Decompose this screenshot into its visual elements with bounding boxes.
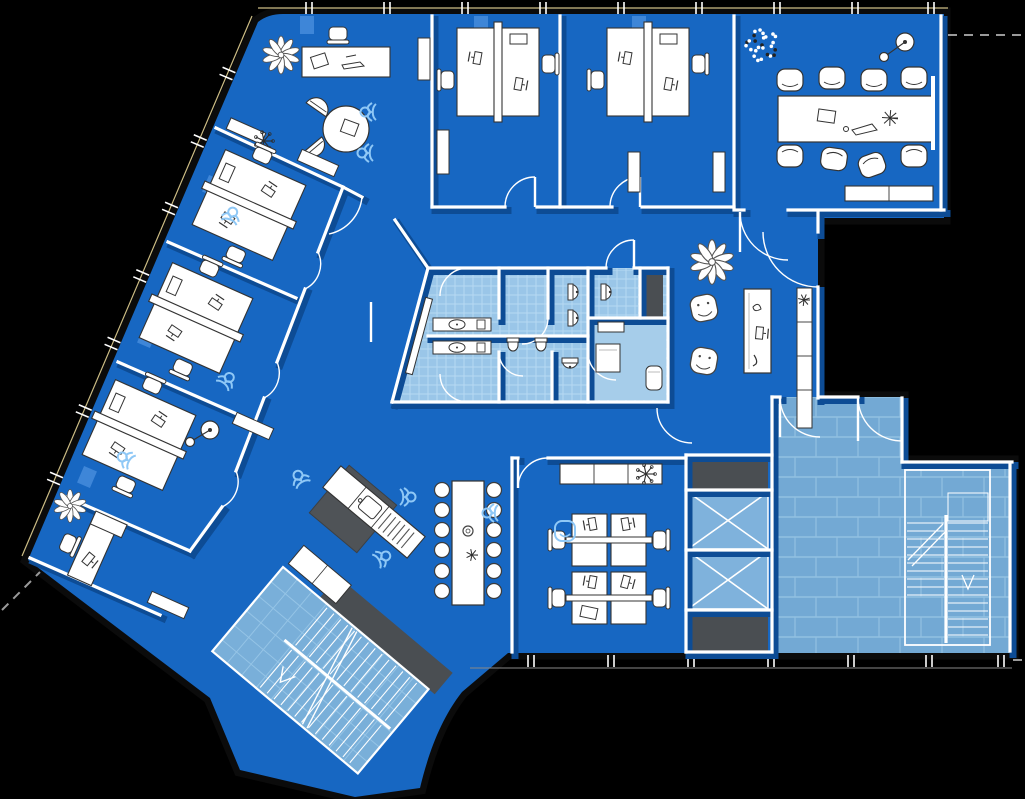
plant-dot [762,36,766,40]
chair-shell [819,67,845,89]
chair-seat [441,71,454,89]
monitor-screen [755,327,763,340]
elevator-shaft-wall-bottom [688,611,768,652]
plant-dot [753,39,757,43]
monitor-stand [522,85,525,86]
desk-divider [644,22,652,122]
urinal [507,338,519,351]
monitor-screen [473,52,482,65]
paper-tray [510,34,527,44]
plant-center [278,52,284,58]
small-shelf [598,322,624,332]
stool-seat [487,543,502,558]
cabinet [437,130,449,174]
monitor-stand [586,525,589,526]
plant-dot [770,44,774,48]
stool-seat [435,523,450,538]
stool-seat [487,523,502,538]
stool [435,523,450,538]
urinal [535,338,547,351]
plant-dot [761,46,765,50]
stool [435,543,450,558]
drain [569,366,571,368]
chair-seat [653,589,666,607]
plant-dot [758,28,762,32]
wc-tiles-base [590,270,638,316]
phone-icon [753,304,761,310]
stool [487,564,502,579]
chair-shell [777,69,803,91]
wc-tiles [590,270,638,316]
plant-dot [757,46,761,50]
boiler-body [646,366,662,390]
chair-back [548,587,552,609]
chair-seat [542,55,555,73]
plant-dot [771,32,775,36]
chair-back [587,69,591,91]
plant-dot [753,30,757,34]
chair-shell [861,69,887,91]
stool [435,584,450,599]
office-chair [653,587,670,609]
chair-back [666,587,670,609]
conference-chair [861,69,887,91]
plant-dot [747,39,751,43]
shelf-column [797,288,812,428]
plant-dot [754,49,758,53]
floor-plan-canvas [0,0,1025,799]
chair-seat [591,71,604,89]
conference-chair [777,145,803,167]
stool-seat [487,584,502,599]
bowl [463,526,473,536]
plant-dot [760,57,764,61]
chair-seat [653,531,666,549]
soap [477,343,485,352]
plant-dot [772,53,776,57]
paper-tray [660,34,677,44]
conference-chair [901,67,927,89]
conference-chair [901,145,927,167]
monitor-screen [514,77,523,90]
monitor-stand [629,523,632,524]
drain [456,324,458,326]
stool [487,483,502,498]
monitor-screen [664,77,673,90]
pilaster [300,16,314,34]
stool-seat [435,584,450,599]
office-chair [548,587,565,609]
chair-seat [692,55,705,73]
monitor-screen [623,52,632,65]
stool-seat [435,503,450,518]
chair-seat [329,27,347,40]
chair-back [555,53,559,75]
cabinet-body [418,38,430,80]
plant-sprig [890,110,891,118]
chair-shell [820,146,849,171]
sideboard [845,186,933,201]
cistern [568,284,573,300]
plant-dot [749,48,753,52]
cup [844,127,849,132]
plant-center [68,504,73,509]
desk [457,28,495,116]
cabinet-body [437,130,449,174]
stool [435,564,450,579]
chair-shell [777,145,803,167]
floor-plan-svg [0,0,1025,799]
plant-dot [752,34,756,38]
urinal-top [535,338,547,342]
desk-divider [566,537,652,543]
conference-table [778,96,932,142]
drain [456,347,458,349]
break-table [452,481,484,605]
office-chair [437,69,454,91]
cabinet [418,38,430,80]
table-top [778,96,932,142]
plant-center [709,259,716,266]
desk-divider [566,595,652,601]
table-top [452,481,484,605]
conference-chair [820,146,849,171]
drain [609,291,611,293]
soap [477,320,485,329]
conference-chair [777,69,803,91]
monitor-screen [588,576,597,589]
plant-dot [752,54,756,58]
chair-shell [901,145,927,167]
cistern [562,358,578,363]
office-chair [692,53,709,75]
chair-back [548,529,552,551]
chair-shell [901,67,927,89]
urinal-bowl [536,342,546,351]
armchair [689,346,719,376]
stool [435,503,450,518]
stool-seat [435,483,450,498]
monitor-stand [471,57,474,58]
stool [487,584,502,599]
conference-chair [819,67,845,89]
round-table [323,106,369,152]
plant-dot [756,59,760,63]
rest-table [596,344,620,372]
monitor-stand [672,85,675,86]
cabinet-body [713,152,725,192]
shelf-body [797,288,812,428]
monitor-stand [621,57,624,58]
urinal-bowl [508,342,518,351]
lamp-base [880,53,889,62]
plant-dot [766,53,770,57]
sink-counter [433,341,491,354]
cabinet [713,152,725,192]
stool-seat [435,543,450,558]
reception-desk [744,289,771,373]
chair-back [437,69,441,91]
monitor-stand [586,581,589,582]
desk [607,28,645,116]
stool-seat [487,483,502,498]
stool-seat [487,564,502,579]
plant-dot [744,44,748,48]
office-chair [653,529,670,551]
cistern [568,310,573,326]
plant-dot [761,32,765,36]
chair-back [327,40,349,44]
chair-shell [689,346,719,376]
table-top [596,344,620,372]
sink-counter [433,318,491,331]
office-chair [542,53,559,75]
office-chair [587,69,604,91]
cabinet-body [628,152,640,192]
cistern [601,284,606,300]
lamp-base [186,438,195,447]
chair-seat [552,589,565,607]
tablet [817,109,836,123]
desk-divider [494,22,502,122]
drain [576,291,578,293]
stool [487,543,502,558]
monitor-screen [588,517,597,530]
stool-seat [435,564,450,579]
shelf-body [598,322,624,332]
drain [576,317,578,319]
chair-back [666,529,670,551]
monitor-screen [621,518,630,531]
chair-back [705,53,709,75]
urinal-top [507,338,519,342]
stool [487,523,502,538]
stool [435,483,450,498]
office-chair [327,27,349,44]
plant-dot [771,41,775,45]
cabinet [628,152,640,192]
plant-dot [773,48,777,52]
boiler [646,366,662,390]
